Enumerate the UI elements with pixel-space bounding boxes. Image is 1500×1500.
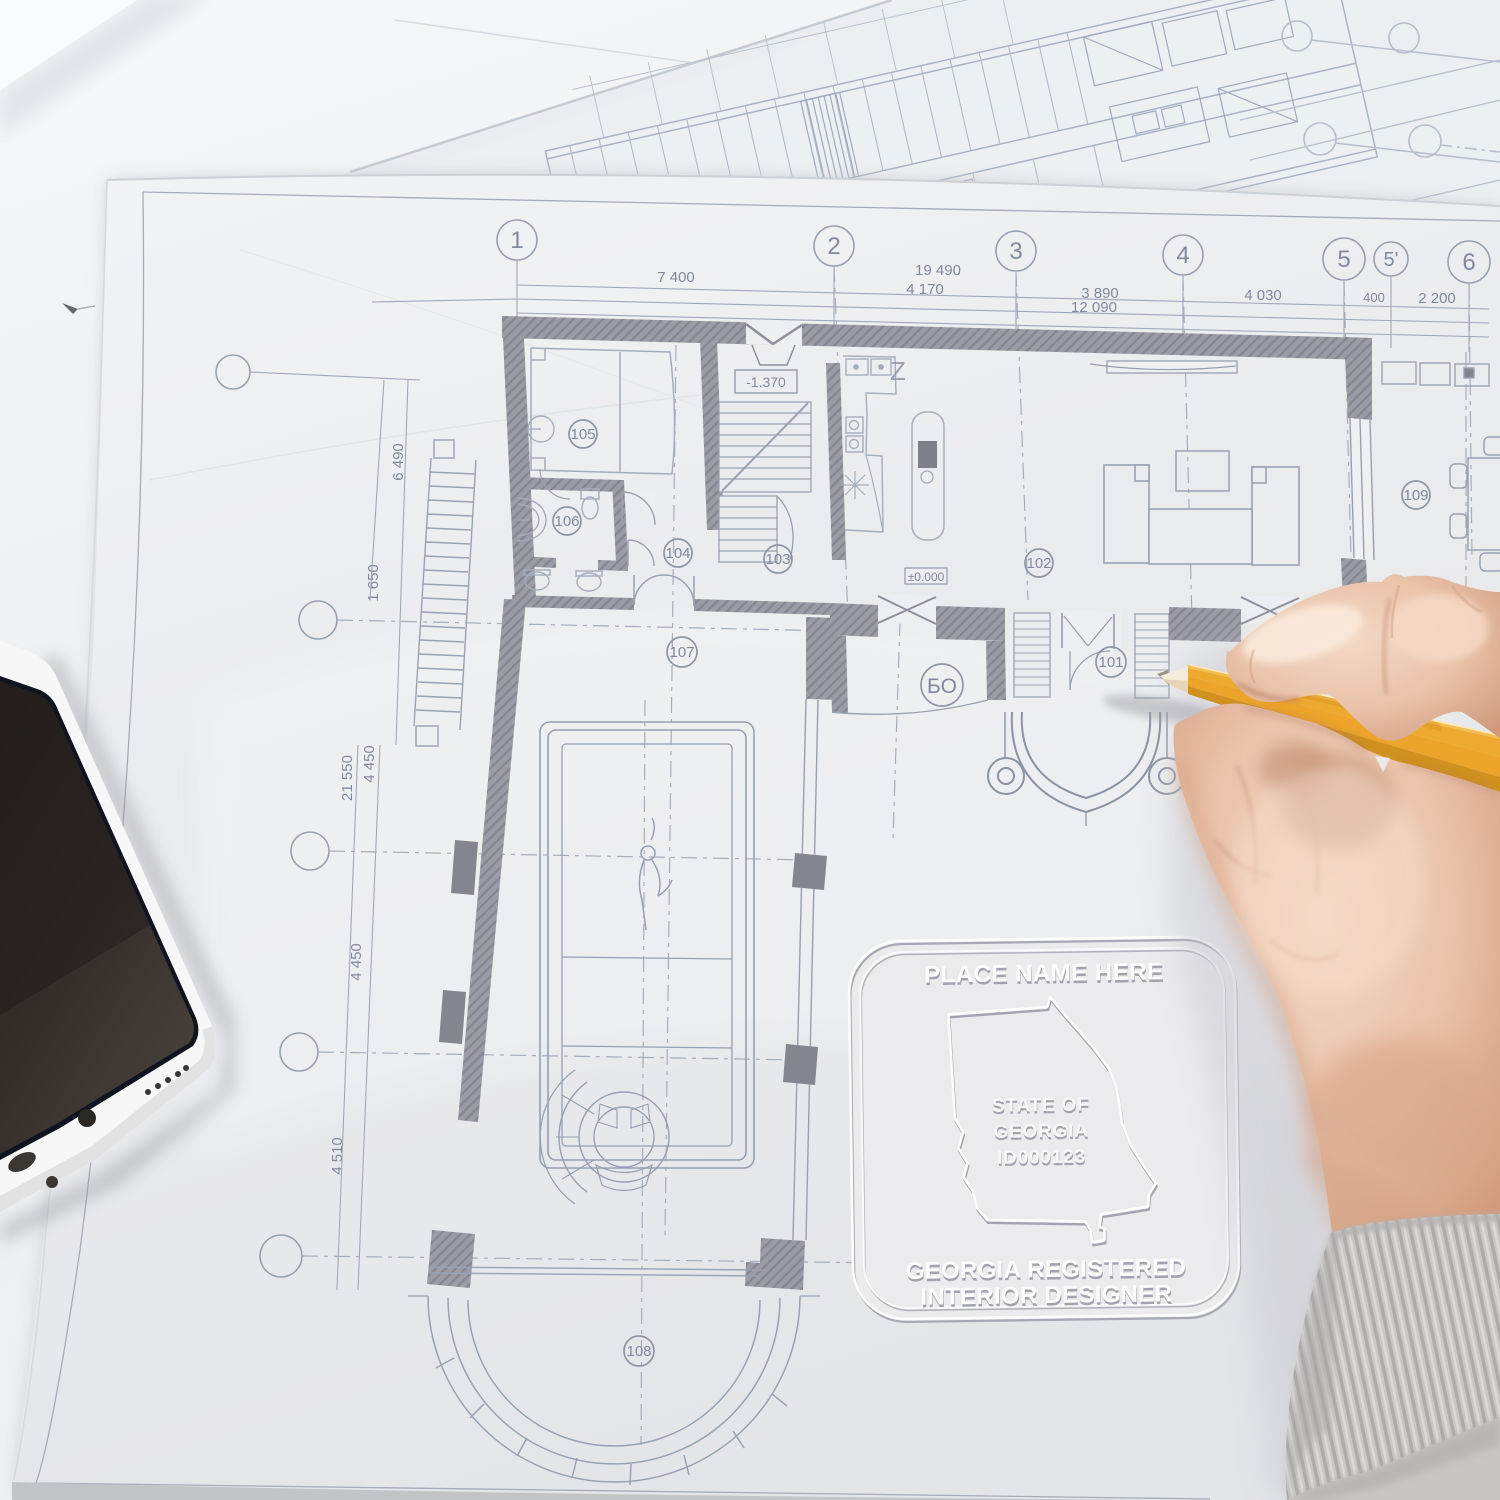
svg-text:GEORGIA: GEORGIA: [993, 1120, 1089, 1142]
svg-text:STATE OF: STATE OF: [992, 1094, 1090, 1116]
svg-text:INTERIOR DESIGNER: INTERIOR DESIGNER: [920, 1280, 1172, 1311]
svg-text:ID000123: ID000123: [997, 1146, 1086, 1168]
svg-text:PLACE NAME HERE: PLACE NAME HERE: [924, 958, 1164, 988]
